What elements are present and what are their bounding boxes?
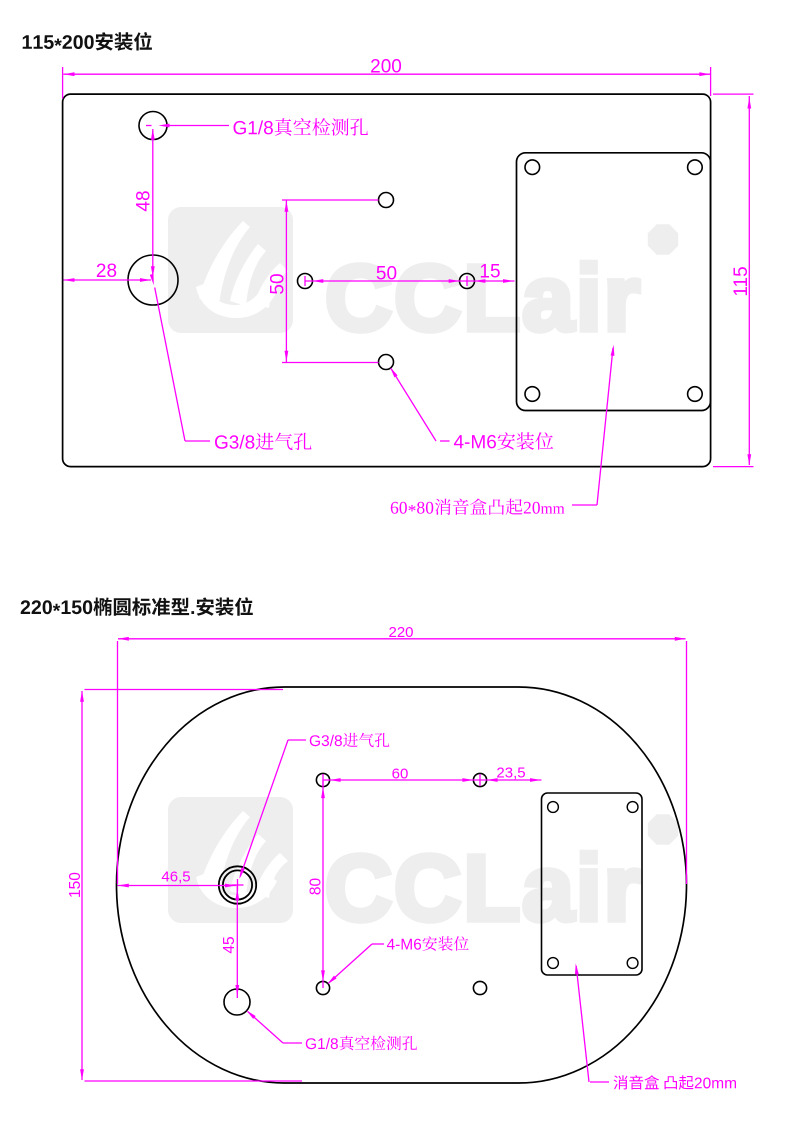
- svg-text:220: 220: [388, 624, 413, 641]
- svg-text:28: 28: [96, 261, 117, 282]
- svg-text:15: 15: [479, 262, 500, 283]
- svg-text:60: 60: [392, 766, 409, 783]
- svg-text:200: 200: [370, 57, 402, 78]
- svg-text:80: 80: [308, 878, 325, 896]
- svg-text:23,5: 23,5: [496, 765, 525, 782]
- svg-text:115: 115: [731, 266, 752, 296]
- svg-text:50: 50: [268, 273, 289, 294]
- svg-text:48: 48: [134, 190, 155, 211]
- svg-text:150: 150: [67, 872, 84, 898]
- svg-text:CCLair: CCLair: [325, 836, 642, 940]
- svg-text:46,5: 46,5: [161, 869, 190, 886]
- svg-text:45: 45: [221, 936, 238, 953]
- svg-text:50: 50: [376, 264, 397, 285]
